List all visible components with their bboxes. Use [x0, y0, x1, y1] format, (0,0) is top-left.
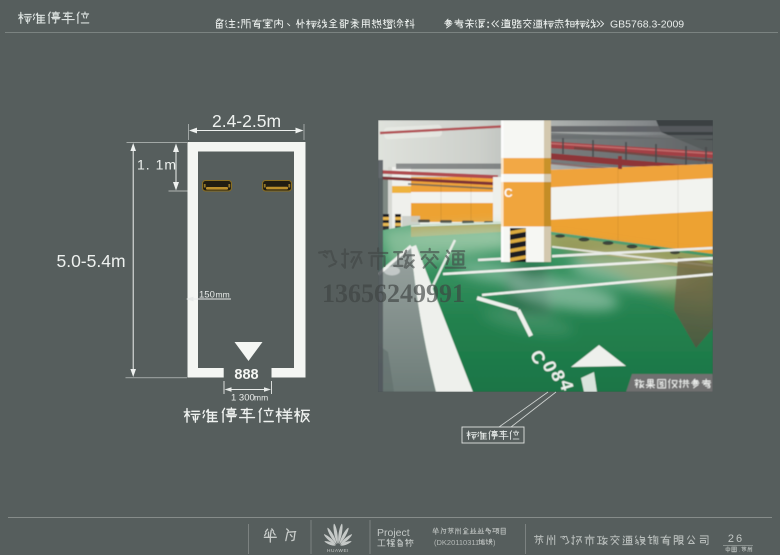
- svg-text:5.0-5.4m: 5.0-5.4m: [56, 251, 125, 271]
- svg-text:): ): [493, 538, 496, 547]
- svg-text:mm: mm: [254, 393, 268, 403]
- svg-text:1 300: 1 300: [231, 393, 255, 404]
- svg-text:26: 26: [728, 533, 744, 545]
- svg-text:888: 888: [234, 367, 258, 383]
- svg-text:mm: mm: [216, 290, 230, 300]
- svg-text:(DK20110311: (DK20110311: [434, 538, 479, 547]
- svg-text:C: C: [504, 186, 513, 200]
- svg-text:1. 1m: 1. 1m: [137, 157, 177, 173]
- svg-text:GB5768.3-2009: GB5768.3-2009: [610, 19, 684, 31]
- svg-text:Project: Project: [377, 527, 410, 539]
- svg-text:HUAWEI: HUAWEI: [327, 548, 349, 554]
- svg-text:2.4-2.5m: 2.4-2.5m: [212, 111, 281, 131]
- svg-text:150: 150: [199, 290, 215, 301]
- svg-text:13656249991: 13656249991: [322, 279, 465, 308]
- svg-text:.: .: [739, 548, 741, 554]
